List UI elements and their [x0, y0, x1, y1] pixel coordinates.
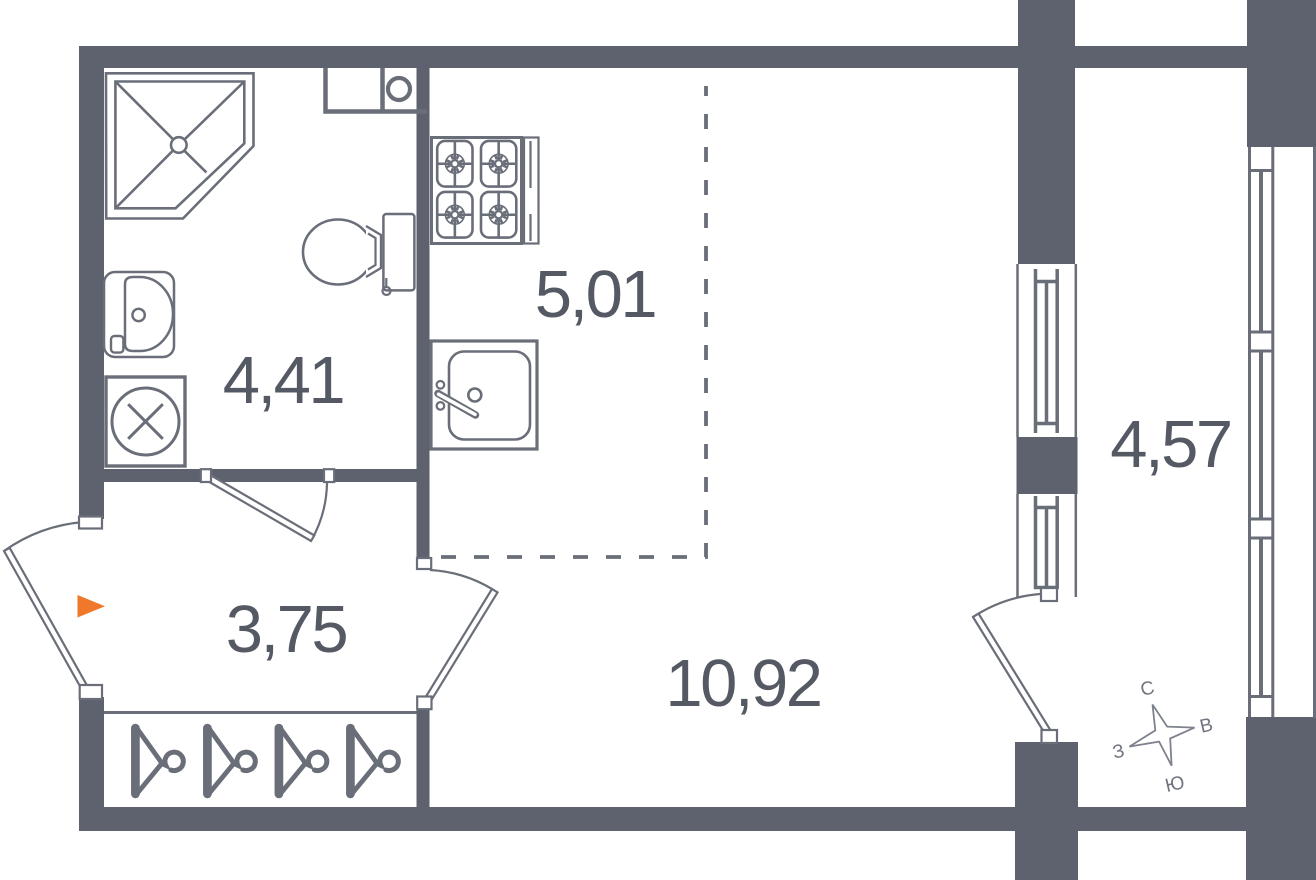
- svg-text:4,57: 4,57: [1110, 407, 1230, 482]
- svg-text:3,75: 3,75: [226, 592, 347, 667]
- svg-text:4,41: 4,41: [223, 343, 343, 418]
- svg-text:5,01: 5,01: [535, 257, 655, 332]
- svg-text:10,92: 10,92: [665, 646, 820, 721]
